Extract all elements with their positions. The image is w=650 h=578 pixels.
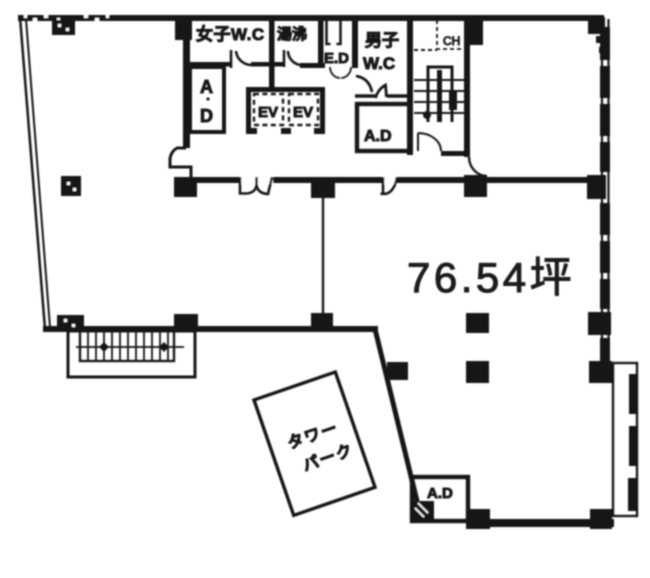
svg-text:A: A: [200, 77, 213, 97]
svg-text:女子W.C: 女子W.C: [196, 24, 265, 44]
svg-text:EV: EV: [258, 104, 278, 121]
svg-text:E.D: E.D: [324, 50, 349, 67]
svg-text:CH: CH: [443, 34, 460, 48]
svg-text:A.D: A.D: [427, 485, 453, 502]
svg-text:A.D: A.D: [364, 128, 392, 145]
svg-text:D: D: [200, 106, 213, 126]
svg-text:EV: EV: [293, 104, 313, 121]
svg-text:W.C: W.C: [363, 54, 395, 73]
svg-text:男子: 男子: [365, 31, 399, 50]
svg-text:湯沸: 湯沸: [277, 25, 307, 43]
svg-text:76.54坪: 76.54坪: [407, 254, 575, 301]
